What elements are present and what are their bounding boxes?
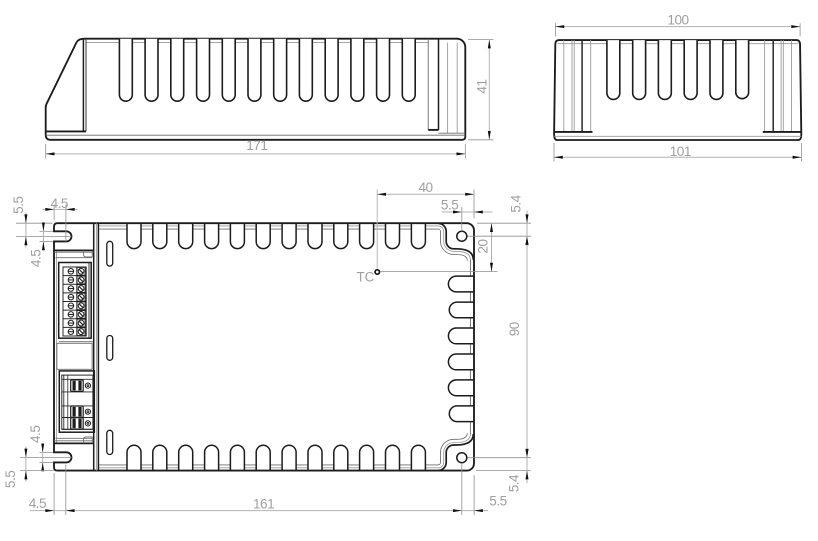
svg-text:4.5: 4.5 [29,250,44,267]
svg-text:4.5: 4.5 [28,426,43,443]
svg-text:5.5: 5.5 [441,197,458,212]
svg-text:5.5: 5.5 [11,196,26,213]
svg-text:5.4: 5.4 [509,194,524,212]
svg-text:4.5: 4.5 [29,496,46,511]
svg-text:90: 90 [507,321,522,336]
svg-text:40: 40 [418,180,433,195]
svg-text:20: 20 [476,239,491,254]
svg-text:5.4: 5.4 [507,474,522,492]
svg-text:5.5: 5.5 [489,494,506,509]
svg-text:101: 101 [670,144,691,159]
svg-text:5.5: 5.5 [3,471,18,488]
svg-text:TC: TC [357,270,375,285]
svg-text:41: 41 [475,79,490,93]
svg-text:161: 161 [253,497,274,512]
svg-text:171: 171 [246,138,267,153]
svg-text:100: 100 [667,13,689,28]
svg-text:4.5: 4.5 [51,196,68,211]
